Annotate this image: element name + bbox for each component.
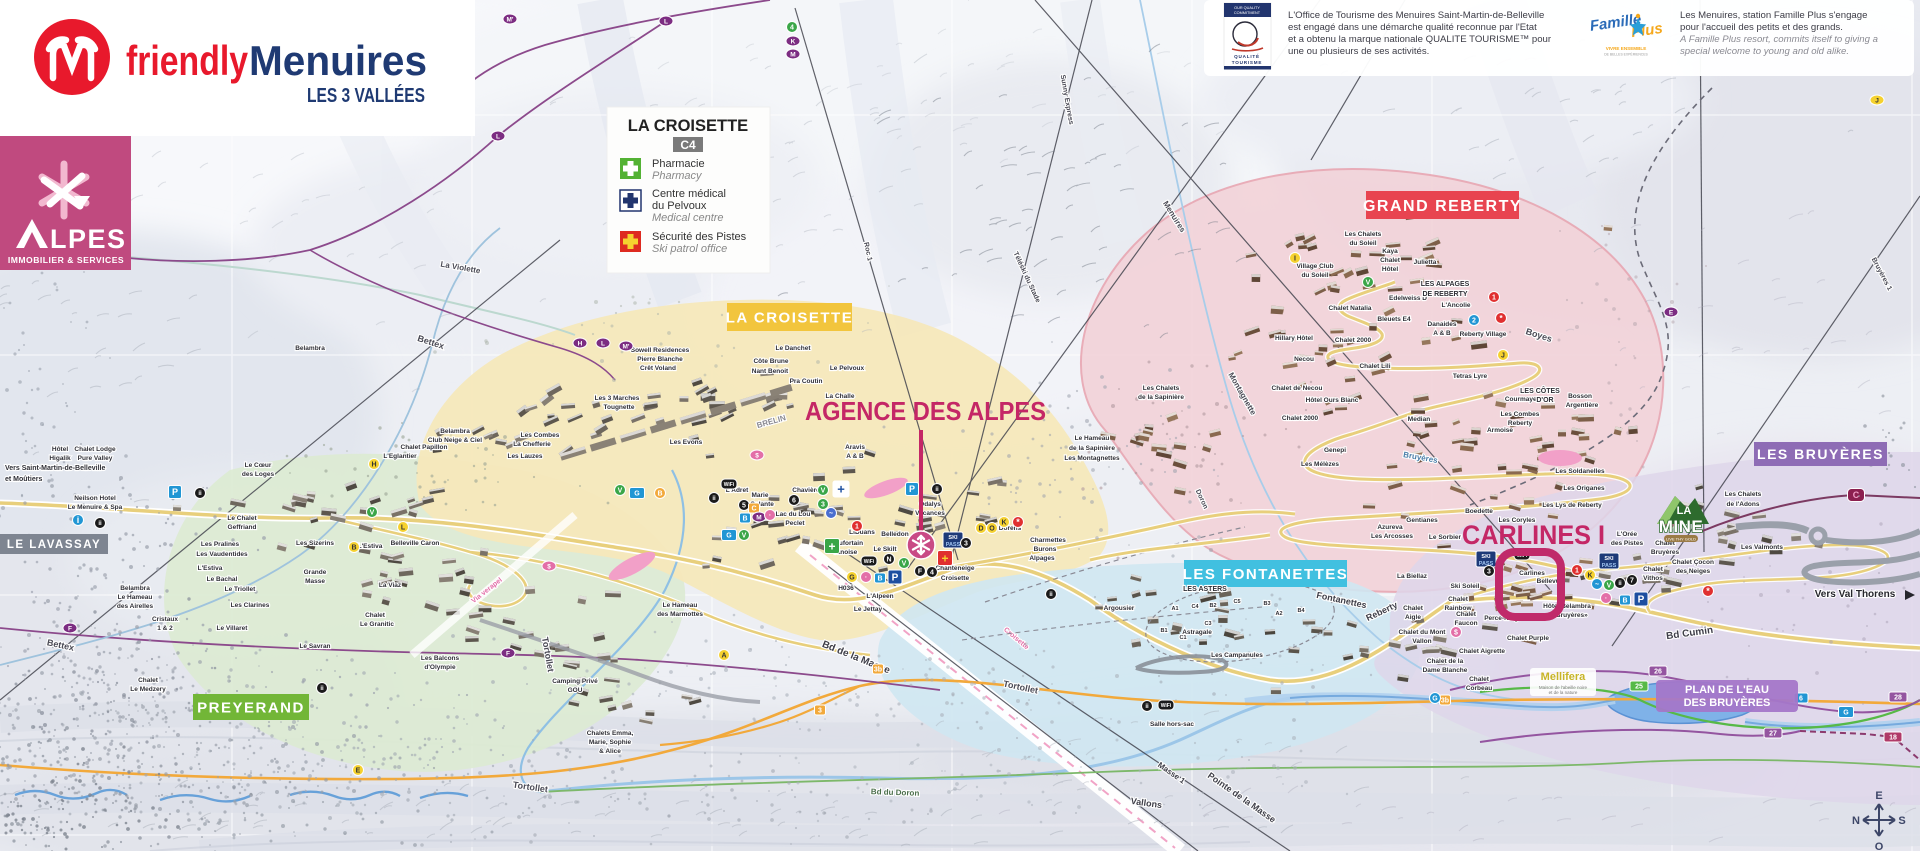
svg-text:L'Estiva: L'Estiva bbox=[358, 543, 383, 550]
svg-text:LIVE THY GOLD: LIVE THY GOLD bbox=[1666, 537, 1696, 542]
svg-text:F: F bbox=[506, 650, 510, 657]
svg-text:V: V bbox=[821, 488, 826, 495]
svg-text:B2: B2 bbox=[1209, 603, 1216, 609]
svg-text:1: 1 bbox=[1492, 295, 1496, 302]
svg-text:Hillary Hôtel: Hillary Hôtel bbox=[1275, 335, 1313, 342]
svg-text:Chalet Purple: Chalet Purple bbox=[1507, 635, 1549, 642]
svg-text:Grande: Grande bbox=[304, 569, 327, 576]
svg-text:F: F bbox=[918, 569, 923, 576]
svg-text:V: V bbox=[742, 533, 747, 540]
svg-text:ii: ii bbox=[1049, 592, 1053, 598]
svg-text:C5: C5 bbox=[1233, 599, 1240, 605]
svg-text:A1: A1 bbox=[1171, 606, 1178, 612]
svg-text:Menuires: Menuires bbox=[249, 37, 427, 84]
svg-text:B: B bbox=[351, 545, 356, 552]
svg-text:D'OR: D'OR bbox=[1536, 397, 1553, 404]
svg-text:ii: ii bbox=[935, 487, 939, 493]
svg-text:Chalet de la: Chalet de la bbox=[1427, 658, 1464, 665]
svg-text:Marie: Marie bbox=[752, 492, 769, 499]
svg-text:La Biellaz: La Biellaz bbox=[1397, 573, 1428, 580]
svg-text:Sécurité des Pistes: Sécurité des Pistes bbox=[652, 231, 747, 243]
svg-text:VIVRE ENSEMBLE: VIVRE ENSEMBLE bbox=[1606, 46, 1647, 51]
svg-text:Vers Saint-Martin-de-Bellevill: Vers Saint-Martin-de-Belleville bbox=[5, 465, 105, 472]
svg-text:GOU: GOU bbox=[568, 687, 583, 694]
svg-text:K: K bbox=[1001, 520, 1006, 527]
svg-text:Les Campanules: Les Campanules bbox=[1211, 652, 1263, 659]
svg-text:$: $ bbox=[755, 452, 759, 459]
svg-text:3b: 3b bbox=[874, 667, 882, 674]
svg-text:5: 5 bbox=[742, 503, 746, 510]
svg-text:Pra Coutin: Pra Coutin bbox=[790, 378, 823, 385]
svg-text:Argousier: Argousier bbox=[1104, 605, 1135, 612]
svg-text:Le Danchet: Le Danchet bbox=[775, 345, 811, 352]
svg-text:J: J bbox=[1501, 353, 1505, 360]
svg-text:L'Orée: L'Orée bbox=[1617, 531, 1638, 538]
svg-text:Pierre Blanche: Pierre Blanche bbox=[637, 356, 683, 363]
svg-text:des Marmottes: des Marmottes bbox=[657, 611, 703, 618]
svg-text:Club Neige & Ciel: Club Neige & Ciel bbox=[428, 437, 482, 444]
svg-text:Azureva: Azureva bbox=[1377, 524, 1403, 531]
svg-text:LES ALPAGES: LES ALPAGES bbox=[1421, 281, 1470, 288]
svg-text:Genepi: Genepi bbox=[1324, 447, 1346, 454]
svg-text:Armoise: Armoise bbox=[1487, 427, 1513, 434]
svg-text:Les Soldanelles: Les Soldanelles bbox=[1555, 468, 1605, 475]
svg-text:C4: C4 bbox=[680, 138, 696, 152]
svg-text:3: 3 bbox=[1487, 569, 1491, 576]
svg-text:La Chefferie: La Chefferie bbox=[513, 441, 551, 448]
svg-text:Boedette: Boedette bbox=[1465, 508, 1493, 515]
svg-text:des Neiges: des Neiges bbox=[1676, 568, 1711, 575]
svg-text:LES FONTANETTES: LES FONTANETTES bbox=[1183, 566, 1349, 583]
svg-text:du Soleil: du Soleil bbox=[1349, 240, 1376, 247]
svg-text:+: + bbox=[941, 551, 948, 565]
svg-text:Hôtel: Hôtel bbox=[52, 446, 68, 453]
svg-text:Le Chalet: Le Chalet bbox=[227, 515, 257, 522]
svg-text:H: H bbox=[371, 462, 376, 469]
svg-text:Hôtel: Hôtel bbox=[1382, 266, 1398, 273]
svg-text:H036: H036 bbox=[838, 585, 854, 592]
svg-text:·: · bbox=[865, 575, 867, 582]
svg-text:L'Alpeen: L'Alpeen bbox=[866, 593, 893, 600]
svg-text:du Soleil: du Soleil bbox=[1301, 272, 1328, 279]
svg-text:Carlines: Carlines bbox=[1519, 570, 1545, 577]
svg-text:Les Evons: Les Evons bbox=[670, 439, 703, 446]
svg-text:PLAN DE L'EAU: PLAN DE L'EAU bbox=[1685, 684, 1769, 696]
svg-text:friendly: friendly bbox=[126, 37, 249, 84]
svg-text:AGENCE DES ALPES: AGENCE DES ALPES bbox=[805, 396, 1046, 426]
svg-text:4: 4 bbox=[790, 25, 794, 32]
svg-text:P: P bbox=[892, 573, 899, 584]
svg-text:O: O bbox=[989, 526, 995, 533]
svg-text:Chalet Çocon: Chalet Çocon bbox=[1672, 559, 1714, 566]
svg-text:Le Skilt: Le Skilt bbox=[873, 546, 897, 553]
svg-text:SKI: SKI bbox=[1604, 556, 1614, 562]
svg-text:Les Balcons: Les Balcons bbox=[421, 655, 460, 662]
svg-text:N: N bbox=[886, 557, 891, 564]
svg-text:Les Clarines: Les Clarines bbox=[231, 602, 270, 609]
svg-text:Aigle: Aigle bbox=[1405, 614, 1421, 621]
svg-text:de la Sapinière: de la Sapinière bbox=[1069, 445, 1115, 452]
svg-text:une ou plusieurs de ses activi: une ou plusieurs de ses activités. bbox=[1288, 46, 1429, 57]
svg-text:B1: B1 bbox=[1160, 628, 1167, 634]
svg-text:ii: ii bbox=[198, 491, 202, 497]
svg-text:L'Eglantier: L'Eglantier bbox=[383, 453, 417, 460]
svg-text:Vers Val Thorens: Vers Val Thorens bbox=[1815, 589, 1896, 600]
svg-text:Le Medzery: Le Medzery bbox=[130, 686, 166, 693]
svg-text:Salle hors-sac: Salle hors-sac bbox=[1150, 721, 1194, 728]
svg-text:Masse: Masse bbox=[305, 578, 325, 585]
svg-text:28: 28 bbox=[1894, 695, 1902, 702]
svg-text:LA: LA bbox=[1677, 505, 1692, 517]
svg-text:6: 6 bbox=[792, 498, 796, 505]
svg-text:+: + bbox=[828, 539, 835, 553]
svg-text:Ski Soleil: Ski Soleil bbox=[1451, 583, 1480, 590]
svg-text:B: B bbox=[1622, 598, 1627, 605]
svg-text:1: 1 bbox=[1575, 568, 1579, 575]
svg-text:E: E bbox=[1669, 309, 1674, 316]
svg-text:M': M' bbox=[623, 343, 630, 350]
svg-text:H: H bbox=[578, 340, 583, 347]
svg-text:A Famille Plus resort, commits: A Famille Plus resort, commits itself to… bbox=[1679, 34, 1878, 45]
svg-text:PASS: PASS bbox=[1602, 563, 1617, 569]
svg-text:7: 7 bbox=[1630, 578, 1634, 585]
svg-text:Hôtel Ours Blanc: Hôtel Ours Blanc bbox=[1306, 397, 1359, 404]
svg-text:Le Hameau: Le Hameau bbox=[1075, 435, 1110, 442]
svg-text:3: 3 bbox=[964, 541, 968, 548]
svg-text:Faucon: Faucon bbox=[1454, 620, 1477, 627]
svg-text:OUR QUALITY: OUR QUALITY bbox=[1234, 6, 1260, 10]
svg-text:Higalik: Higalik bbox=[49, 455, 71, 462]
svg-text:B: B bbox=[742, 516, 747, 523]
svg-text:K: K bbox=[1587, 573, 1592, 580]
svg-text:Aravis: Aravis bbox=[845, 444, 865, 451]
svg-text:special welcome to young and o: special welcome to young and old alike. bbox=[1680, 46, 1849, 57]
svg-text:des Airelles: des Airelles bbox=[117, 603, 154, 610]
svg-text:Chalet 2000: Chalet 2000 bbox=[1335, 337, 1372, 344]
svg-text:J: J bbox=[1875, 97, 1879, 104]
svg-text:Alpages: Alpages bbox=[1029, 555, 1055, 562]
svg-text:Les Montagnettes: Les Montagnettes bbox=[1064, 455, 1120, 462]
svg-text:Chalets Emma,: Chalets Emma, bbox=[587, 730, 634, 737]
svg-text:Chalet: Chalet bbox=[1403, 605, 1424, 612]
svg-text:Chalet Lodge: Chalet Lodge bbox=[74, 446, 116, 453]
svg-text:1: 1 bbox=[855, 524, 859, 531]
svg-text:Medical centre: Medical centre bbox=[652, 212, 724, 224]
svg-text:Le Menuire & Spa: Le Menuire & Spa bbox=[68, 504, 123, 511]
svg-text:V: V bbox=[1366, 280, 1371, 287]
svg-text:Les Chalets: Les Chalets bbox=[1143, 385, 1180, 392]
svg-text:N: N bbox=[1852, 815, 1860, 827]
svg-text:Sowell Residences: Sowell Residences bbox=[631, 347, 690, 354]
svg-text:Chalet: Chalet bbox=[1469, 676, 1490, 683]
svg-text:Neilson Hotel: Neilson Hotel bbox=[74, 495, 116, 502]
svg-text:DE REBERTY: DE REBERTY bbox=[1422, 291, 1467, 298]
svg-text:Le Granitic: Le Granitic bbox=[360, 621, 394, 628]
svg-text:LES 3 VALLÉES: LES 3 VALLÉES bbox=[307, 84, 425, 107]
svg-text:~: ~ bbox=[829, 511, 833, 518]
svg-text:P: P bbox=[909, 484, 915, 494]
svg-text:ii: ii bbox=[320, 686, 324, 692]
svg-text:Chalet: Chalet bbox=[138, 677, 159, 684]
svg-text:18: 18 bbox=[1889, 735, 1897, 742]
svg-text:4: 4 bbox=[930, 570, 934, 577]
svg-text:Le Jettay: Le Jettay bbox=[854, 606, 883, 613]
svg-text:et Moûtiers: et Moûtiers bbox=[5, 476, 42, 483]
svg-text:Tougnette: Tougnette bbox=[604, 404, 635, 411]
svg-text:Village Club: Village Club bbox=[1296, 263, 1333, 270]
svg-text:27: 27 bbox=[1769, 731, 1777, 738]
svg-text:Nant Benoit: Nant Benoit bbox=[752, 368, 789, 375]
svg-text:Bruyères: Bruyères bbox=[1651, 549, 1680, 556]
svg-text:6: 6 bbox=[1799, 696, 1803, 703]
svg-text:G: G bbox=[1843, 710, 1849, 717]
svg-text:Les Menuires, station Famille: Les Menuires, station Famille Plus s'eng… bbox=[1680, 10, 1867, 21]
svg-text:Chanteneige: Chanteneige bbox=[935, 565, 974, 572]
svg-text:Argentière: Argentière bbox=[1566, 402, 1599, 409]
svg-text:A2: A2 bbox=[1275, 611, 1282, 617]
svg-text:G: G bbox=[849, 575, 855, 582]
svg-text:DE BELLES EXPÉRIENCES: DE BELLES EXPÉRIENCES bbox=[1604, 52, 1648, 57]
svg-text:Le Sorbier: Le Sorbier bbox=[1429, 534, 1462, 541]
svg-text:Le Triollet: Le Triollet bbox=[225, 586, 257, 593]
svg-text:IMMOBILIER & SERVICES: IMMOBILIER & SERVICES bbox=[8, 255, 124, 265]
svg-text:du Pelvoux: du Pelvoux bbox=[652, 200, 707, 212]
svg-text:E: E bbox=[356, 768, 361, 775]
svg-text:WiFi: WiFi bbox=[724, 482, 735, 488]
svg-text:Kaya: Kaya bbox=[1382, 248, 1398, 255]
svg-text:G: G bbox=[726, 533, 732, 540]
svg-text:de la Sapinière: de la Sapinière bbox=[1138, 394, 1184, 401]
svg-text:Belledon: Belledon bbox=[881, 531, 908, 538]
svg-text:PASS: PASS bbox=[946, 542, 961, 548]
svg-text:LES ASTERS: LES ASTERS bbox=[1183, 586, 1227, 593]
svg-text:Belambra: Belambra bbox=[440, 428, 470, 435]
svg-text:Le Hameau: Le Hameau bbox=[663, 602, 698, 609]
svg-text:LE LAVASSAY: LE LAVASSAY bbox=[7, 539, 101, 551]
svg-text:F: F bbox=[68, 625, 72, 632]
svg-text:Chalet: Chalet bbox=[365, 612, 386, 619]
svg-text:Belleville Caron: Belleville Caron bbox=[391, 540, 440, 547]
svg-text:Chalet: Chalet bbox=[1380, 257, 1401, 264]
svg-text:Pharmacy: Pharmacy bbox=[652, 170, 703, 182]
svg-text:Le Cœur: Le Cœur bbox=[245, 462, 272, 469]
svg-text:Le Savran: Le Savran bbox=[299, 643, 330, 650]
svg-text:Reberty: Reberty bbox=[1508, 420, 1533, 427]
svg-text:Chalet Aigrette: Chalet Aigrette bbox=[1459, 648, 1505, 655]
svg-text:Belambra: Belambra bbox=[120, 585, 150, 592]
svg-text:DES BRUYÈRES: DES BRUYÈRES bbox=[1684, 696, 1771, 709]
svg-text:ii: ii bbox=[1145, 704, 1149, 710]
svg-text:·: · bbox=[1605, 596, 1607, 603]
svg-text:M: M bbox=[790, 51, 795, 58]
svg-text:26: 26 bbox=[1654, 669, 1662, 676]
svg-text:& Alice: & Alice bbox=[599, 748, 621, 755]
svg-text:Centre médical: Centre médical bbox=[652, 188, 726, 200]
svg-text:1 & 2: 1 & 2 bbox=[157, 625, 173, 632]
svg-text:Les Chalets: Les Chalets bbox=[1725, 491, 1762, 498]
svg-text:Chalet du Mont: Chalet du Mont bbox=[1399, 629, 1447, 636]
svg-text:L: L bbox=[664, 18, 668, 25]
svg-text:Tetras Lyre: Tetras Lyre bbox=[1453, 373, 1488, 380]
svg-text:Ski patrol office: Ski patrol office bbox=[652, 243, 727, 255]
svg-text:Le Pelvoux: Le Pelvoux bbox=[830, 365, 865, 372]
svg-text:3b: 3b bbox=[1441, 698, 1449, 705]
svg-text:Charmettes: Charmettes bbox=[1030, 537, 1066, 544]
svg-text:pour l'accueil des petits et d: pour l'accueil des petits et des grands. bbox=[1680, 22, 1843, 33]
svg-text:Chalet Lili: Chalet Lili bbox=[1359, 363, 1390, 370]
svg-text:Corbeau: Corbeau bbox=[1466, 685, 1492, 692]
svg-text:S: S bbox=[1898, 815, 1905, 827]
svg-text:ii: ii bbox=[98, 521, 102, 527]
svg-text:C3: C3 bbox=[1204, 621, 1211, 627]
svg-text:Lac du Lou: Lac du Lou bbox=[776, 511, 811, 518]
svg-text:Chavière: Chavière bbox=[792, 487, 820, 494]
svg-text:L'Office de Tourisme des Menui: L'Office de Tourisme des Menuires Saint-… bbox=[1288, 10, 1544, 21]
svg-text:Peclet: Peclet bbox=[785, 520, 805, 527]
svg-text:~: ~ bbox=[1595, 582, 1599, 589]
svg-text:G: G bbox=[1432, 696, 1438, 703]
svg-text:Bosson: Bosson bbox=[1568, 393, 1592, 400]
svg-text:de l'Adons: de l'Adons bbox=[1727, 501, 1760, 508]
svg-text:V: V bbox=[618, 488, 623, 495]
svg-text:Les Lauzes: Les Lauzes bbox=[507, 453, 542, 460]
svg-text:Chalet 2000: Chalet 2000 bbox=[1282, 415, 1319, 422]
svg-text:I: I bbox=[1294, 256, 1296, 263]
svg-text:O: O bbox=[1875, 841, 1884, 851]
svg-text:LA CROISETTE: LA CROISETTE bbox=[628, 117, 748, 135]
svg-text:et a obtenu la marque national: et a obtenu la marque nationale QUALITE … bbox=[1288, 34, 1552, 45]
svg-text:i: i bbox=[77, 515, 80, 525]
svg-text:Vithos: Vithos bbox=[1643, 575, 1663, 582]
svg-text:G: G bbox=[634, 491, 640, 498]
svg-text:Le Villaret: Le Villaret bbox=[217, 625, 249, 632]
svg-text:La Viaz: La Viaz bbox=[379, 582, 402, 589]
svg-text:SKI: SKI bbox=[948, 535, 958, 541]
svg-text:TOURISME: TOURISME bbox=[1232, 60, 1263, 65]
svg-text:COMMITMENT: COMMITMENT bbox=[1234, 11, 1261, 15]
svg-text:LES BRUYÈRES: LES BRUYÈRES bbox=[1757, 446, 1884, 462]
svg-text:Les Vaudentides: Les Vaudentides bbox=[196, 551, 248, 558]
svg-text:ii: ii bbox=[1618, 581, 1622, 587]
svg-text:C4: C4 bbox=[1191, 604, 1199, 610]
svg-text:V: V bbox=[902, 561, 907, 568]
svg-text:Le Bachal: Le Bachal bbox=[207, 576, 238, 583]
svg-text:Les Valmonts: Les Valmonts bbox=[1741, 544, 1783, 551]
svg-text:+: + bbox=[837, 482, 845, 497]
svg-text:L: L bbox=[601, 340, 605, 347]
svg-text:Les Sizerins: Les Sizerins bbox=[296, 540, 334, 547]
svg-text:Median: Median bbox=[1408, 416, 1430, 423]
svg-text:M: M bbox=[756, 514, 761, 521]
svg-text:Les Chalets: Les Chalets bbox=[1345, 231, 1382, 238]
svg-text:GRAND REBERTY: GRAND REBERTY bbox=[1363, 198, 1522, 215]
svg-text:Cristaux: Cristaux bbox=[152, 616, 178, 623]
svg-text:3: 3 bbox=[821, 502, 825, 509]
svg-text:Chalet Papillon: Chalet Papillon bbox=[401, 444, 448, 451]
svg-text:MINE: MINE bbox=[1659, 517, 1704, 536]
svg-text:Les Origanes: Les Origanes bbox=[1563, 485, 1605, 492]
svg-text:Les 3 Marches: Les 3 Marches bbox=[595, 395, 640, 402]
svg-text:ii: ii bbox=[712, 496, 716, 502]
svg-text:PREYERAND: PREYERAND bbox=[197, 699, 305, 716]
svg-text:D: D bbox=[978, 526, 983, 533]
svg-text:Croisette: Croisette bbox=[941, 575, 970, 582]
svg-text:L'Ancolie: L'Ancolie bbox=[1442, 302, 1471, 309]
svg-text:Les Pralines: Les Pralines bbox=[201, 541, 240, 548]
svg-text:WiFi: WiFi bbox=[1161, 703, 1172, 709]
svg-text:LES CÔTES: LES CÔTES bbox=[1520, 386, 1560, 395]
svg-text:Chalet: Chalet bbox=[1448, 596, 1469, 603]
svg-text:Burons: Burons bbox=[1034, 546, 1057, 553]
svg-text:L: L bbox=[401, 525, 406, 532]
svg-text:Pharmacie: Pharmacie bbox=[652, 158, 705, 170]
svg-text:2: 2 bbox=[1472, 318, 1476, 325]
svg-text:Chalet de Necou: Chalet de Necou bbox=[1272, 385, 1323, 392]
svg-text:L: L bbox=[496, 133, 500, 140]
svg-text:L'Estiva: L'Estiva bbox=[198, 565, 223, 572]
svg-text:P: P bbox=[172, 487, 178, 497]
svg-text:CARLINES I: CARLINES I bbox=[1462, 520, 1605, 550]
svg-text:*: * bbox=[1706, 586, 1710, 596]
svg-text:B: B bbox=[877, 576, 882, 583]
svg-text:Les Combes: Les Combes bbox=[1501, 411, 1540, 418]
svg-text:Les Arcosses: Les Arcosses bbox=[1371, 533, 1413, 540]
svg-text:Dame Blanche: Dame Blanche bbox=[1423, 667, 1468, 674]
svg-text:A & B: A & B bbox=[846, 453, 864, 460]
svg-text:Crêt Voland: Crêt Voland bbox=[640, 365, 676, 372]
svg-text:Gentianes: Gentianes bbox=[1406, 517, 1438, 524]
svg-text:Belambra: Belambra bbox=[295, 345, 325, 352]
svg-text:Bleuets E4: Bleuets E4 bbox=[1377, 316, 1411, 323]
svg-text:Bd du Doron: Bd du Doron bbox=[871, 787, 920, 798]
svg-text:A & B: A & B bbox=[1433, 330, 1451, 337]
svg-text:Les Mélèzes: Les Mélèzes bbox=[1301, 461, 1339, 468]
svg-text:B: B bbox=[657, 491, 662, 498]
svg-text:Danaides: Danaides bbox=[1428, 321, 1457, 328]
svg-text:C: C bbox=[751, 506, 756, 513]
svg-text:des Loges: des Loges bbox=[242, 471, 275, 478]
svg-text:$: $ bbox=[1454, 630, 1458, 637]
svg-text:Chalet: Chalet bbox=[1456, 611, 1477, 618]
svg-text:E: E bbox=[1875, 790, 1882, 802]
svg-text:B3: B3 bbox=[1263, 601, 1270, 607]
svg-text:A: A bbox=[721, 653, 726, 660]
svg-text:Le Hameau: Le Hameau bbox=[118, 594, 153, 601]
svg-text:B4: B4 bbox=[1297, 608, 1305, 614]
svg-text:LPES: LPES bbox=[50, 224, 127, 254]
svg-text:QUALITÉ: QUALITÉ bbox=[1234, 52, 1260, 59]
svg-text:K: K bbox=[791, 38, 796, 45]
svg-text:Chalet Natalia: Chalet Natalia bbox=[1329, 305, 1372, 312]
svg-text:Astragale: Astragale bbox=[1182, 629, 1212, 636]
svg-text:Mellifera: Mellifera bbox=[1541, 671, 1587, 683]
svg-text:Les Combes: Les Combes bbox=[521, 432, 560, 439]
svg-text:Julietta: Julietta bbox=[1414, 259, 1437, 266]
svg-text:est engagé dans une démarche q: est engagé dans une démarche qualité rec… bbox=[1288, 22, 1537, 33]
svg-text:·: · bbox=[769, 513, 771, 520]
svg-text:d'Olympie: d'Olympie bbox=[424, 664, 456, 671]
svg-text:Hôtel Belambra: Hôtel Belambra bbox=[1543, 603, 1591, 610]
svg-text:$: $ bbox=[547, 563, 551, 570]
svg-text:et de la nature: et de la nature bbox=[1549, 690, 1578, 695]
svg-text:V: V bbox=[1607, 583, 1612, 590]
svg-text:Marie, Sophie: Marie, Sophie bbox=[589, 739, 632, 746]
svg-text:P: P bbox=[1638, 595, 1645, 606]
svg-text:Pure Valley: Pure Valley bbox=[78, 455, 113, 462]
svg-text:3: 3 bbox=[818, 708, 822, 715]
svg-text:*: * bbox=[1016, 517, 1020, 527]
svg-text:Chalet: Chalet bbox=[1643, 566, 1664, 573]
